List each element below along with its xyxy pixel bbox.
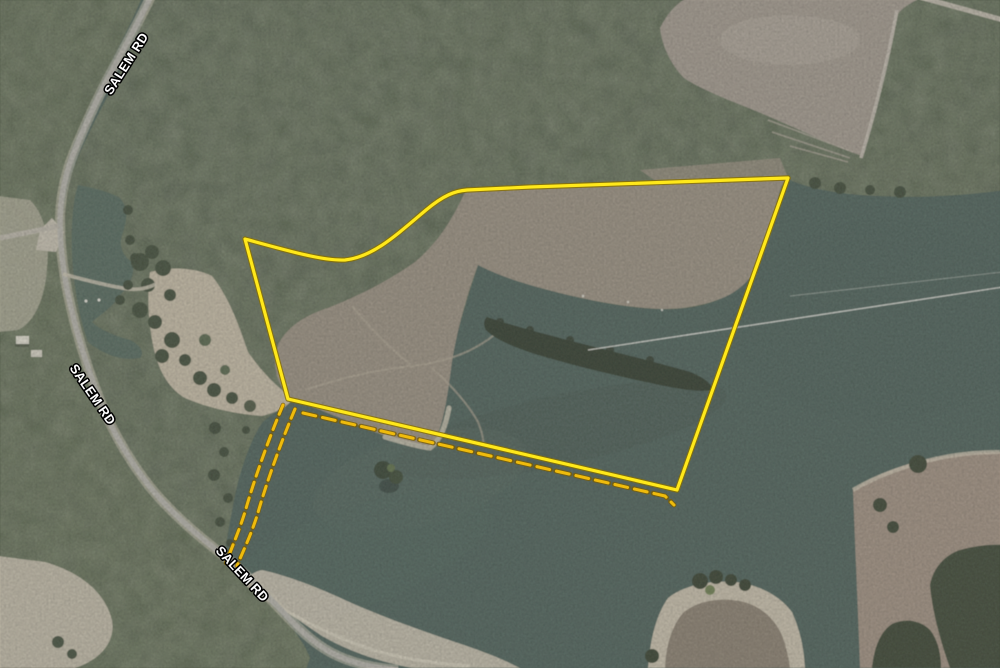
aerial-map: SALEM RD SALEM RD SALEM RD (0, 0, 1000, 668)
grain-light (0, 0, 1000, 668)
terrain-imagery (0, 0, 1000, 668)
